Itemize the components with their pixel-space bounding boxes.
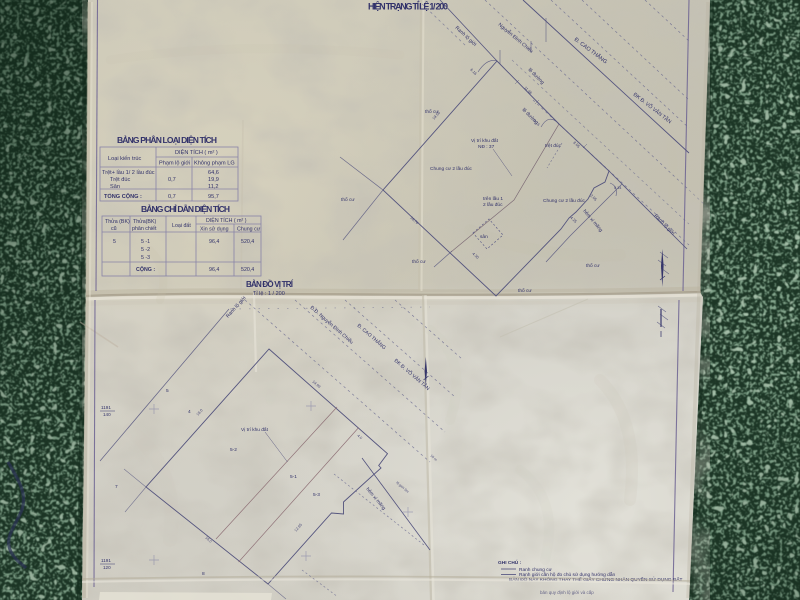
svg-text:thổ cư: thổ cư <box>412 258 426 265</box>
svg-text:0.14: 0.14 <box>614 186 621 190</box>
svg-text:5 -3: 5 -3 <box>141 255 150 261</box>
svg-text:thổ cư: thổ cư <box>341 196 355 203</box>
svg-text:5: 5 <box>113 239 116 245</box>
svg-text:Chung cư 2 lầu đúc: Chung cư 2 lầu đúc <box>430 166 472 172</box>
svg-text:BẢNG PHÂN LOẠI DIỆN TÍCH: BẢNG PHÂN LOẠI DIỆN TÍCH <box>117 134 217 145</box>
svg-text:140: 140 <box>103 412 111 417</box>
svg-text:Vị trí khu đất: Vị trí khu đất <box>241 427 269 433</box>
svg-text:trệt đúc: trệt đúc <box>545 143 562 149</box>
svg-text:Sân: Sân <box>110 184 120 190</box>
svg-text:5 -1: 5 -1 <box>141 239 150 245</box>
svg-text:96,4: 96,4 <box>209 239 219 245</box>
svg-text:DIỆN TÍCH ( m² ): DIỆN TÍCH ( m² ) <box>206 216 247 224</box>
svg-text:sân: sân <box>480 234 488 240</box>
svg-text:thổ cư: thổ cư <box>518 287 532 294</box>
svg-text:520,4: 520,4 <box>241 239 254 245</box>
svg-text:64,6: 64,6 <box>208 170 219 176</box>
svg-text:5-3: 5-3 <box>313 492 320 498</box>
svg-text:Trệt+ lầu 1/ 2 lầu đúc: Trệt+ lầu 1/ 2 lầu đúc <box>102 170 155 176</box>
svg-text:thổ cư: thổ cư <box>425 108 439 115</box>
svg-text:520,4: 520,4 <box>241 267 254 273</box>
svg-text:DIỆN TÍCH ( m² ): DIỆN TÍCH ( m² ) <box>175 148 218 156</box>
svg-text:phân chiết: phân chiết <box>132 226 157 232</box>
svg-text:0,7: 0,7 <box>168 177 176 183</box>
svg-text:Thửa(BK): Thửa(BK) <box>133 218 157 225</box>
svg-text:Chung cư 2 lầu đúc: Chung cư 2 lầu đúc <box>543 198 585 204</box>
svg-text:Tỉ lệ : 1 / 200: Tỉ lệ : 1 / 200 <box>253 290 285 297</box>
svg-text:Xin sử dụng: Xin sử dụng <box>200 226 229 233</box>
svg-text:Phạm lộ giới: Phạm lộ giới <box>159 161 190 167</box>
svg-text:5-1: 5-1 <box>290 474 297 480</box>
svg-text:Vị trí khu đất: Vị trí khu đất <box>471 138 499 144</box>
svg-text:1191: 1191 <box>101 558 111 563</box>
svg-text:Trệt đúc: Trệt đúc <box>110 177 131 183</box>
svg-text:Thửa (BK): Thửa (BK) <box>105 218 130 225</box>
svg-text:BẢNG CHỈ DẪN DIỆN TÍCH: BẢNG CHỈ DẪN DIỆN TÍCH <box>141 203 230 214</box>
svg-text:7: 7 <box>115 484 118 490</box>
svg-text:GHI CHÚ :: GHI CHÚ : <box>498 559 522 566</box>
svg-text:8: 8 <box>202 571 205 577</box>
svg-text:BẢN ĐỒ VỊ TRÍ: BẢN ĐỒ VỊ TRÍ <box>246 279 294 289</box>
svg-text:95,7: 95,7 <box>208 194 219 200</box>
svg-text:0,7: 0,7 <box>168 194 176 200</box>
svg-text:bản quy định lộ giới và cấp: bản quy định lộ giới và cấp <box>540 590 594 595</box>
svg-text:CỘNG :: CỘNG : <box>136 265 155 273</box>
svg-text:11,2: 11,2 <box>208 184 218 190</box>
svg-text:thổ cư: thổ cư <box>586 262 600 269</box>
svg-text:NĐ : 37: NĐ : 37 <box>478 144 495 150</box>
svg-text:1191: 1191 <box>101 405 111 410</box>
svg-text:96,4: 96,4 <box>209 267 219 273</box>
svg-text:trên lầu 1: trên lầu 1 <box>483 196 503 202</box>
svg-text:Loại đất: Loại đất <box>172 223 191 229</box>
svg-text:120: 120 <box>103 565 111 570</box>
svg-text:19,9: 19,9 <box>208 177 219 183</box>
svg-text:Chung cư: Chung cư <box>237 227 261 233</box>
svg-text:HIỆN TRẠNG TỈ LỆ 1/ 200: HIỆN TRẠNG TỈ LỆ 1/ 200 <box>368 1 448 12</box>
svg-text:5-2: 5-2 <box>230 447 237 453</box>
svg-text:TỔNG CỘNG :: TỔNG CỘNG : <box>104 192 142 200</box>
svg-text:5: 5 <box>166 388 169 394</box>
svg-text:Không phạm LG: Không phạm LG <box>194 161 235 167</box>
svg-text:5 -2: 5 -2 <box>141 247 150 253</box>
svg-text:Loại kiến trúc: Loại kiến trúc <box>108 156 141 162</box>
svg-text:2 lầu đúc: 2 lầu đúc <box>483 202 503 208</box>
svg-text:cũ: cũ <box>111 226 117 232</box>
svg-text:4: 4 <box>188 409 191 415</box>
